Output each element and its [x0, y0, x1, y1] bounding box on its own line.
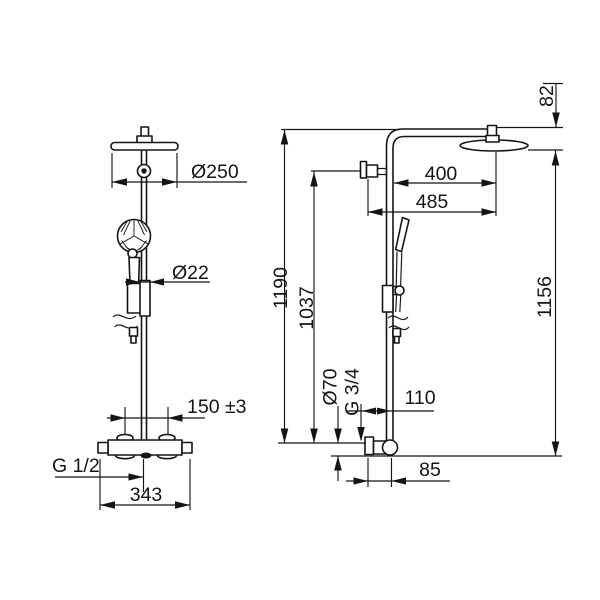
dim-arrows	[129, 473, 144, 480]
dim-valve-diameter: Ø70	[320, 368, 342, 481]
front-handle-right	[182, 443, 192, 454]
dim-label-body-width: 343	[130, 484, 163, 506]
dim-label-arm-reach: 400	[425, 163, 458, 185]
front-slider-bracket	[128, 281, 151, 317]
side-valve-flange	[365, 437, 374, 455]
dim-arrows	[552, 113, 560, 128]
side-valve-cap	[383, 440, 398, 455]
dim-head-height: 1156	[528, 150, 563, 456]
front-head-connector	[137, 127, 152, 143]
side-bracket-plate	[361, 162, 367, 179]
dim-head-diameter: Ø250	[112, 153, 247, 188]
dim-body-width: 343	[100, 459, 190, 510]
front-hose-break	[113, 315, 138, 329]
side-outlet-valve	[365, 437, 398, 455]
technical-drawing-page: Ø250 Ø22 150 ±3 G 1/2 343	[0, 0, 600, 600]
side-hose-end	[393, 329, 401, 344]
front-handle-left	[98, 443, 108, 454]
dim-label-rail-height: 1037	[296, 286, 318, 329]
side-hand-shower-handle	[396, 252, 402, 287]
dim-label-valve-diameter: Ø70	[320, 368, 342, 405]
side-bracket-stem	[378, 169, 387, 175]
side-hose-break	[388, 316, 409, 330]
dim-label-arm-reach-total: 485	[416, 191, 449, 213]
dim-label-arm-drop: 82	[536, 85, 558, 107]
shower-dimension-drawing: Ø250 Ø22 150 ±3 G 1/2 343	[0, 0, 600, 600]
front-arm-joint-center	[141, 168, 146, 173]
side-slider-knob	[395, 286, 404, 295]
dim-label-head-height: 1156	[534, 276, 556, 318]
front-hand-shower-hub	[128, 249, 137, 258]
dim-arrows	[357, 427, 365, 442]
front-hose-end	[130, 328, 138, 344]
dim-arrows	[334, 429, 342, 471]
front-mixer-valve	[98, 435, 192, 459]
side-bracket-cap	[367, 165, 378, 177]
side-wall-bracket	[361, 162, 387, 179]
dim-inlet-spacing: 150 ±3	[107, 396, 247, 434]
dim-label-valve-offset: 85	[419, 459, 441, 481]
side-handle-lower	[396, 295, 401, 312]
front-outlet-center	[141, 453, 152, 459]
dim-arm-drop: 82	[497, 84, 563, 128]
dim-label-wall-offset: 110	[404, 387, 435, 409]
side-slider-bracket	[383, 286, 394, 313]
dim-outlet-thread: G 3/4	[342, 368, 365, 441]
dim-label-head-diameter: Ø250	[191, 161, 239, 183]
dim-label-total-height: 1190	[270, 267, 292, 309]
dim-label-inlet-spacing: 150 ±3	[187, 396, 247, 418]
front-shower-head-disc	[111, 143, 178, 151]
dim-label-rail-diameter: Ø22	[172, 262, 209, 284]
side-hand-shower-wand	[396, 218, 409, 252]
dim-label-outlet-thread: G 3/4	[342, 368, 364, 416]
dim-valve-offset: 85	[346, 458, 450, 487]
dim-label-inlet-thread: G 1/2	[52, 455, 100, 477]
